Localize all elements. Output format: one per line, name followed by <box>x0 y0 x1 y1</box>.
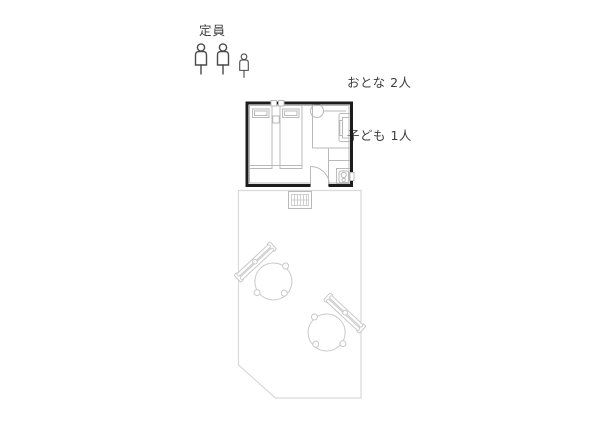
door-swing <box>311 167 330 186</box>
entrance-mat <box>289 192 312 209</box>
headboard-panel <box>271 101 277 107</box>
room-interior <box>250 103 352 186</box>
pillow-right-inner <box>285 111 298 116</box>
lounge-chair-arm <box>340 121 343 136</box>
wall-niche <box>350 173 354 181</box>
lounge-chair-seat <box>343 118 350 139</box>
floorplan-drawing <box>0 0 600 430</box>
stove-burner-icon <box>342 178 345 181</box>
stove-burner-icon <box>341 172 346 177</box>
bedside-shelf <box>273 116 279 123</box>
door-arc <box>311 167 330 186</box>
headboard-panel <box>279 101 285 107</box>
partition-walls <box>313 103 352 161</box>
floorplan-page: 定員 おとな 2人 子ども 1人 <box>0 0 600 430</box>
kitchenette-unit <box>329 161 352 186</box>
pillow-left-inner <box>255 111 268 116</box>
